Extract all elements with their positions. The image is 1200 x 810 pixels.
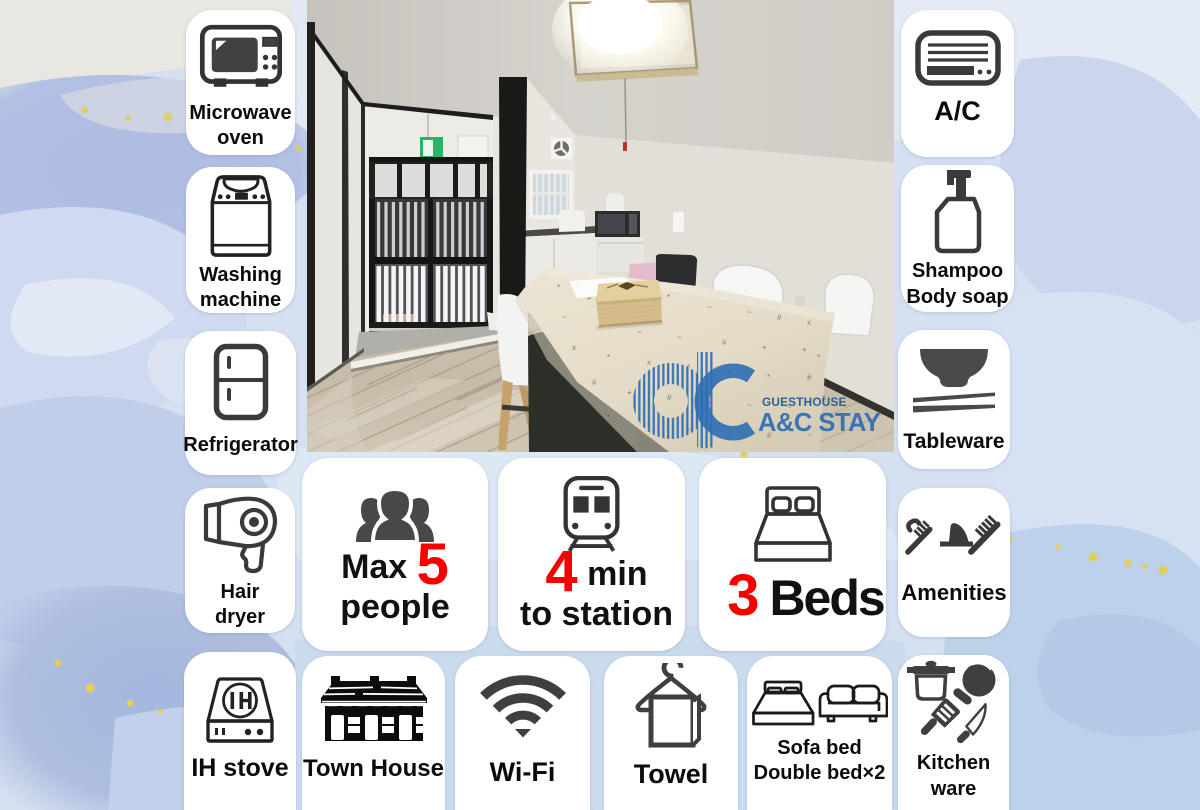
- svg-text:x: x: [807, 318, 811, 327]
- svg-text:~: ~: [747, 308, 752, 317]
- svg-text:GUESTHOUSE: GUESTHOUSE: [762, 395, 847, 409]
- svg-text:*: *: [667, 293, 670, 302]
- svg-text:+: +: [762, 343, 767, 352]
- svg-text:~: ~: [707, 303, 712, 312]
- svg-text:*: *: [767, 373, 770, 382]
- svg-text:A&C STAY: A&C STAY: [758, 409, 881, 437]
- svg-text:x: x: [572, 343, 576, 352]
- svg-text:#: #: [667, 393, 672, 402]
- svg-text:~: ~: [747, 401, 752, 410]
- svg-text:x: x: [647, 358, 651, 367]
- svg-text:*: *: [607, 353, 610, 362]
- svg-text:*: *: [557, 283, 560, 292]
- svg-text:#: #: [722, 338, 727, 347]
- svg-text:#: #: [807, 373, 812, 382]
- svg-text:~: ~: [677, 333, 682, 342]
- svg-text:+: +: [627, 388, 632, 397]
- svg-text:*: *: [817, 353, 820, 362]
- svg-text:#: #: [592, 378, 597, 387]
- svg-text:#: #: [777, 313, 782, 322]
- svg-text:~: ~: [562, 313, 567, 322]
- svg-text:*: *: [607, 413, 610, 422]
- svg-text:+: +: [802, 345, 807, 354]
- svg-text:~: ~: [637, 328, 642, 337]
